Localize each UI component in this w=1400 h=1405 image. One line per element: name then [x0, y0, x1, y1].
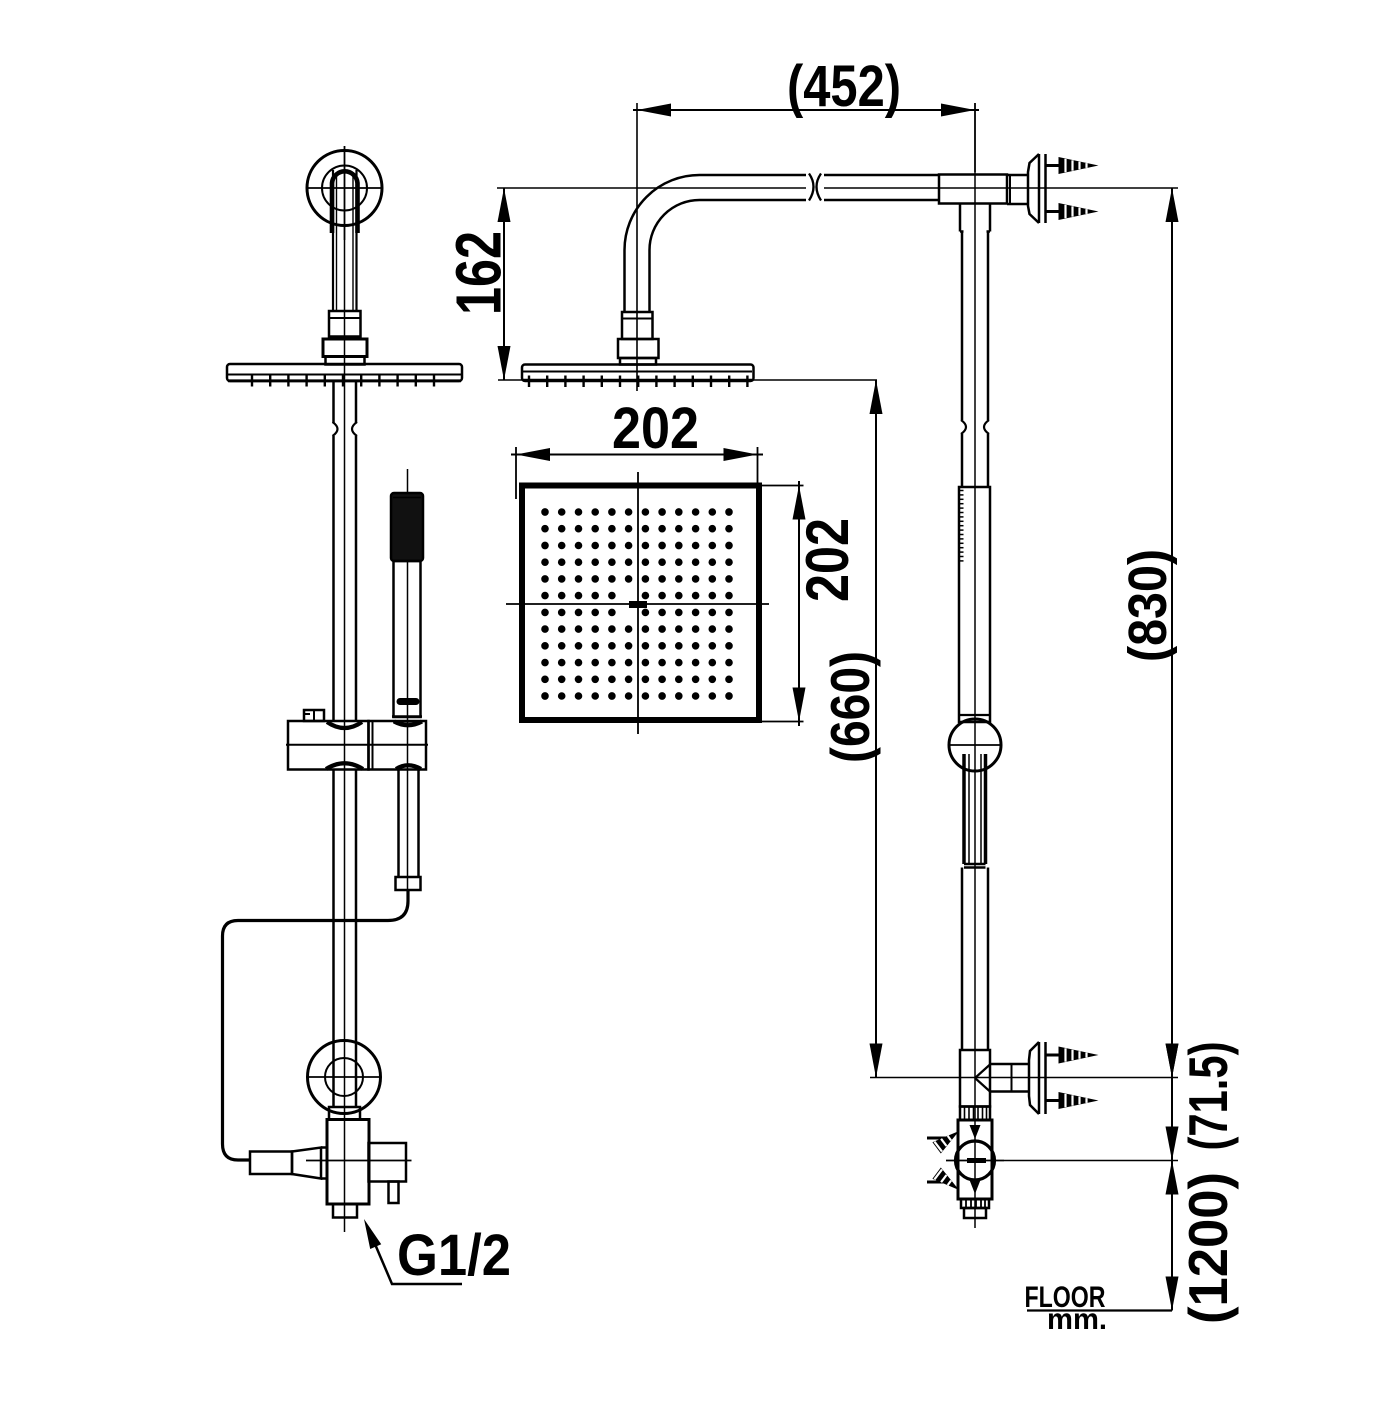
- svg-text:G1/2: G1/2: [397, 1223, 511, 1288]
- svg-text:(71.5): (71.5): [1177, 1042, 1239, 1151]
- svg-text:202: 202: [794, 518, 861, 602]
- svg-text:(452): (452): [787, 54, 901, 119]
- svg-text:(660): (660): [819, 651, 881, 763]
- svg-text:202: 202: [612, 396, 699, 461]
- svg-text:(830): (830): [1118, 549, 1178, 662]
- svg-text:162: 162: [443, 231, 515, 315]
- svg-text:mm.: mm.: [1047, 1303, 1107, 1336]
- svg-text:(1200): (1200): [1177, 1172, 1239, 1324]
